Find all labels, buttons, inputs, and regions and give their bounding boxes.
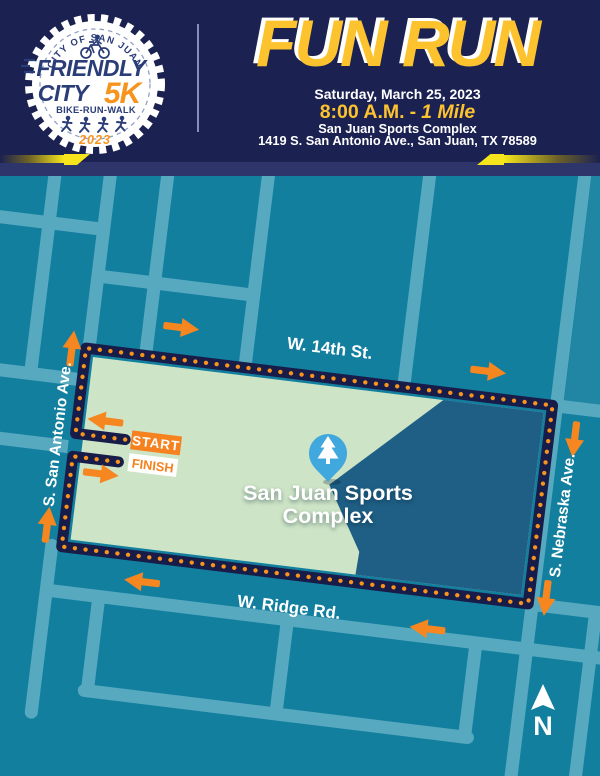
header: CITY OF SAN JUAN FRIENDLY CITY 5K BIKE-R… xyxy=(0,0,600,176)
complex-name-line2: Complex xyxy=(283,504,374,528)
event-time: 8:00 A.M. xyxy=(320,101,405,123)
complex-name-line1: San Juan Sports xyxy=(243,481,413,505)
accent-gradient-right xyxy=(504,155,600,163)
header-divider xyxy=(197,24,199,132)
event-logo-badge: CITY OF SAN JUAN FRIENDLY CITY 5K BIKE-R… xyxy=(0,2,200,174)
event-address: 1419 S. San Antonio Ave., San Juan, TX 7… xyxy=(205,133,590,148)
event-date: Saturday, March 25, 2023 xyxy=(205,86,590,102)
accent-gradient-left xyxy=(0,155,64,163)
badge-word-city: CITY xyxy=(38,80,92,106)
badge-year: 2023 xyxy=(78,133,111,147)
event-title: FUN RUN xyxy=(205,10,590,76)
badge-tagline: BIKE-RUN-WALK xyxy=(56,105,136,115)
north-label: N xyxy=(533,711,553,741)
accent-band xyxy=(0,162,600,176)
event-distance: 1 Mile xyxy=(421,101,475,123)
accent-trapezoid-right xyxy=(477,154,504,165)
time-distance-separator: - xyxy=(410,101,417,123)
fun-run-flyer: CITY OF SAN JUAN FRIENDLY CITY 5K BIKE-R… xyxy=(0,0,600,776)
route-map-svg: W. 14th St. W. Ridge Rd. S. San Antonio … xyxy=(0,176,600,776)
route-map: W. 14th St. W. Ridge Rd. S. San Antonio … xyxy=(0,176,600,776)
